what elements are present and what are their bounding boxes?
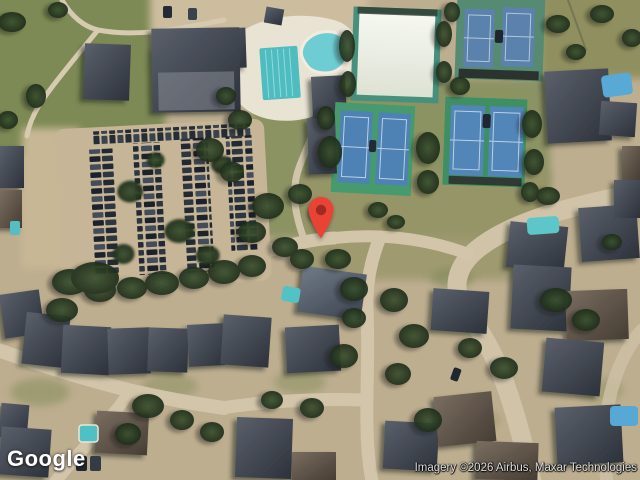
- map-pin-body[interactable]: [309, 197, 334, 239]
- indoor-court-dome: [350, 7, 441, 104]
- tennis-courts-north: [454, 0, 545, 82]
- imagery-attribution: Imagery ©2026 Airbus, Maxar Technologies: [415, 462, 637, 474]
- satellite-imagery: [0, 0, 640, 480]
- tennis-courts-east: [442, 97, 527, 188]
- map-pin-dot: [316, 205, 326, 215]
- map-marker[interactable]: [307, 196, 335, 240]
- tennis-courts-west: [331, 102, 416, 196]
- map-viewport[interactable]: Google Imagery ©2026 Airbus, Maxar Techn…: [0, 0, 640, 480]
- google-logo[interactable]: Google: [7, 446, 86, 472]
